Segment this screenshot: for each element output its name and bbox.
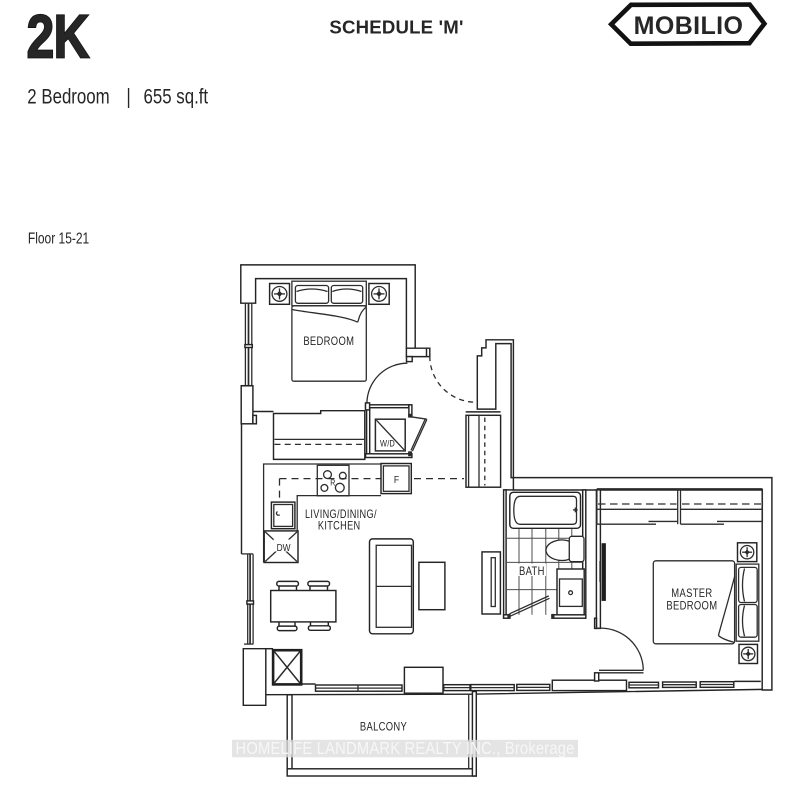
svg-text:BATH: BATH — [519, 565, 545, 578]
svg-text:|: | — [126, 84, 130, 109]
svg-text:Floor 15-21: Floor 15-21 — [28, 229, 90, 247]
svg-text:655 sq.ft: 655 sq.ft — [144, 84, 209, 109]
svg-text:R: R — [330, 478, 335, 488]
svg-text:2K: 2K — [27, 3, 90, 71]
svg-text:BALCONY: BALCONY — [360, 721, 407, 734]
svg-text:SCHEDULE 'M': SCHEDULE 'M' — [329, 16, 463, 37]
svg-text:F: F — [394, 474, 399, 485]
svg-text:BEDROOM: BEDROOM — [303, 335, 354, 348]
svg-text:MASTER: MASTER — [671, 587, 712, 600]
svg-text:HOMELIFE LANDMARK REALTY INC.,: HOMELIFE LANDMARK REALTY INC., Brokerage — [236, 739, 575, 758]
svg-text:BEDROOM: BEDROOM — [666, 600, 717, 613]
svg-text:MOBILIO: MOBILIO — [634, 12, 744, 40]
svg-text:DW: DW — [277, 542, 291, 553]
svg-text:2 Bedroom: 2 Bedroom — [27, 84, 109, 109]
svg-text:KITCHEN: KITCHEN — [318, 520, 361, 532]
svg-text:W/D: W/D — [380, 438, 395, 449]
